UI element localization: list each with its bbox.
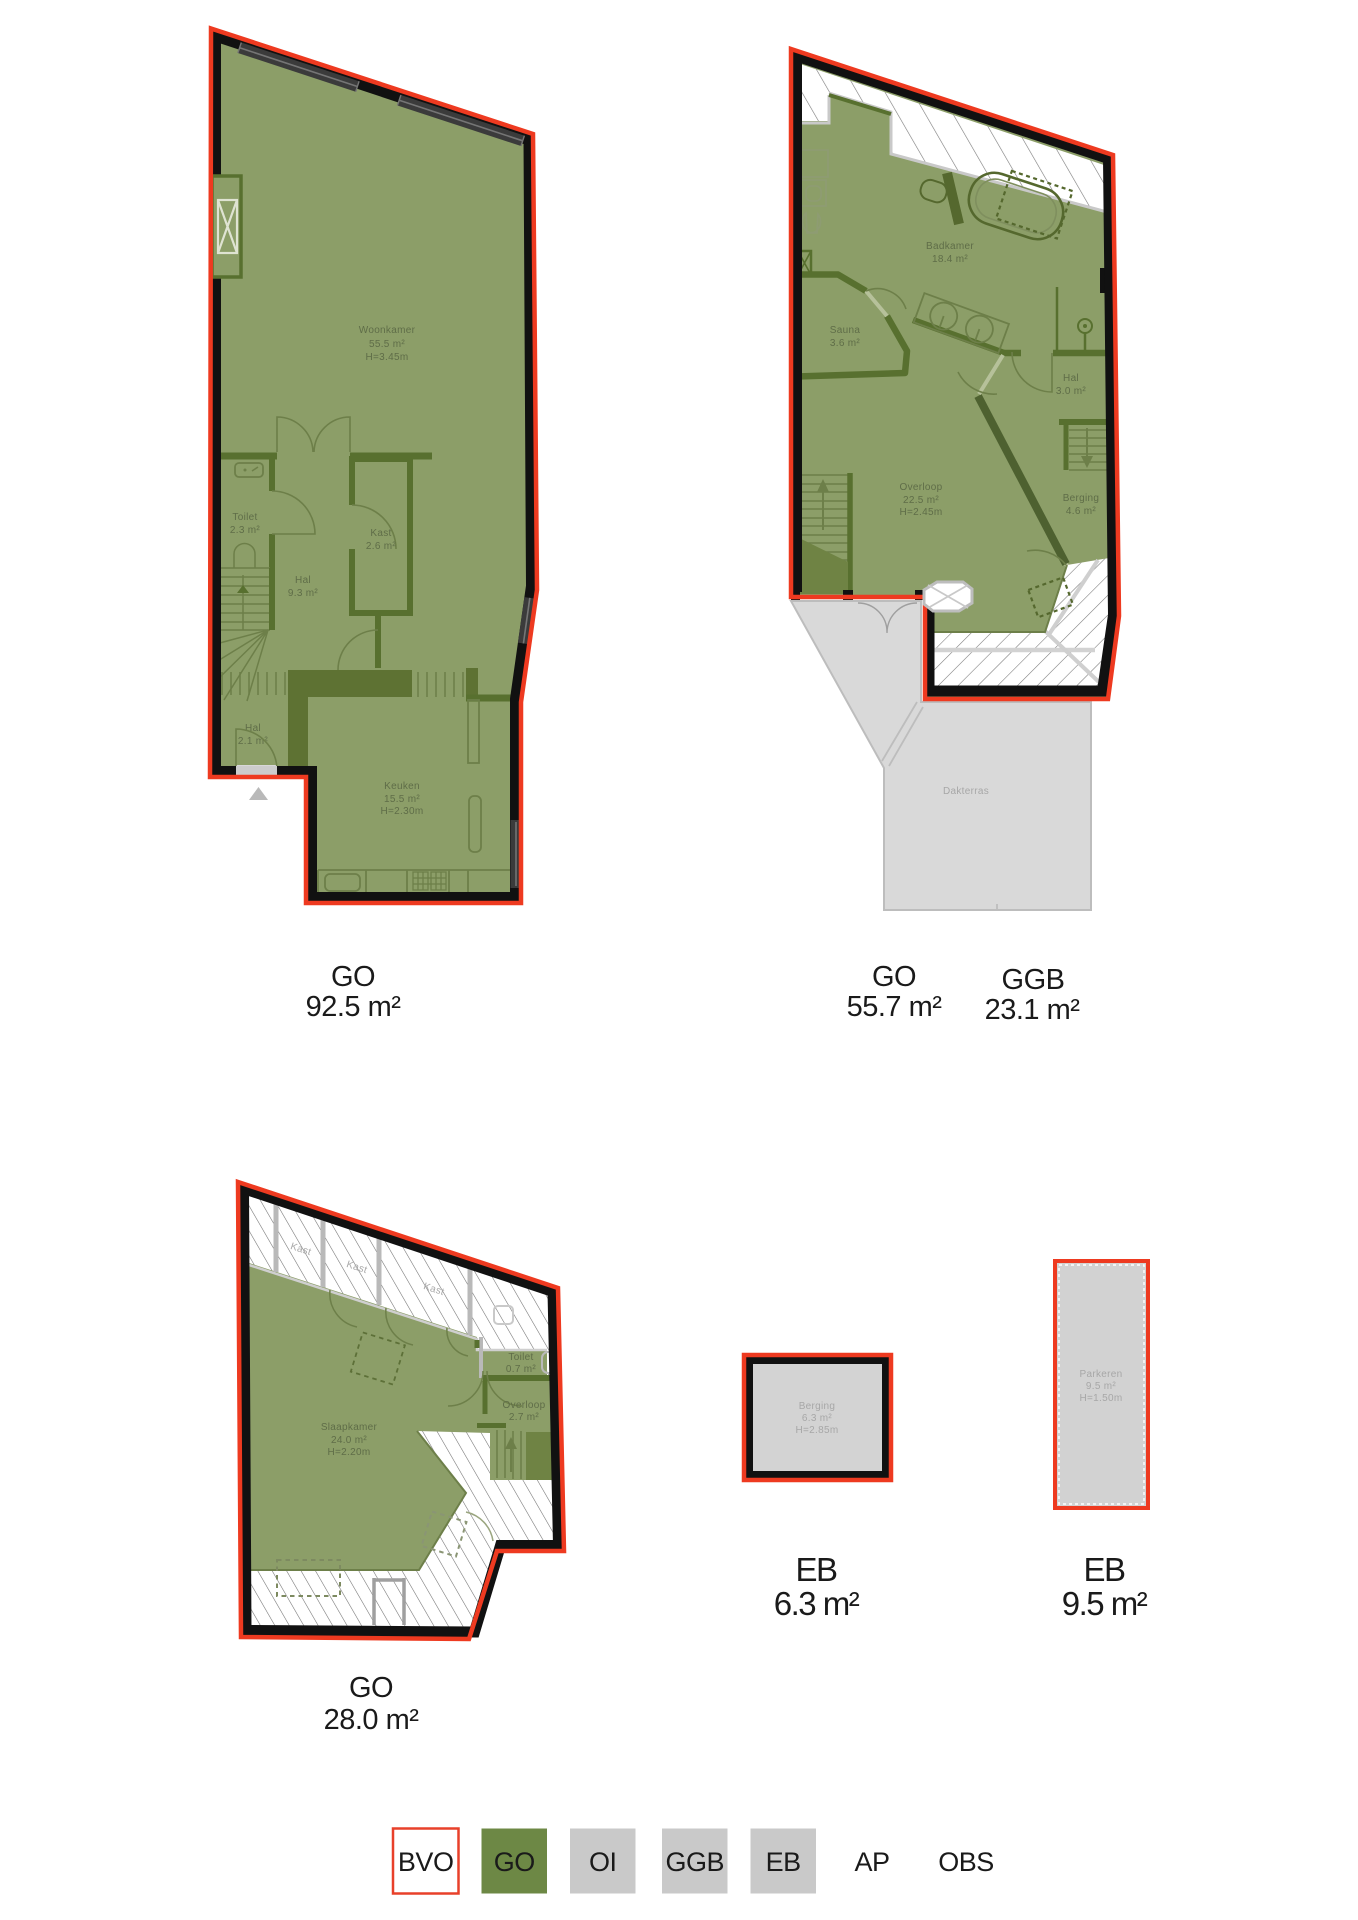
svg-text:GGB: GGB	[665, 1847, 724, 1877]
svg-text:GO: GO	[349, 1672, 393, 1704]
svg-text:BVO: BVO	[398, 1847, 454, 1877]
svg-text:GO: GO	[872, 961, 916, 993]
svg-text:EB: EB	[795, 1551, 837, 1588]
svg-text:2.1 m²: 2.1 m²	[238, 736, 269, 747]
svg-text:3.0 m²: 3.0 m²	[1056, 386, 1087, 397]
svg-text:OI: OI	[589, 1847, 617, 1877]
svg-text:24.0 m²: 24.0 m²	[331, 1435, 367, 1446]
svg-text:H=1.50m: H=1.50m	[1080, 1393, 1123, 1404]
svg-text:GGB: GGB	[1002, 964, 1065, 996]
svg-text:2.7 m²: 2.7 m²	[509, 1412, 540, 1423]
svg-text:Parkeren: Parkeren	[1080, 1369, 1123, 1380]
svg-text:23.1 m²: 23.1 m²	[985, 994, 1081, 1026]
svg-text:9.5 m²: 9.5 m²	[1086, 1381, 1117, 1392]
svg-text:Kast: Kast	[370, 528, 391, 539]
svg-text:GO: GO	[331, 961, 375, 993]
svg-text:6.3 m²: 6.3 m²	[802, 1413, 833, 1424]
svg-text:Toilet: Toilet	[508, 1352, 533, 1363]
svg-text:15.5 m²: 15.5 m²	[384, 794, 420, 805]
svg-text:0.7 m²: 0.7 m²	[506, 1364, 537, 1375]
svg-text:92.5 m²: 92.5 m²	[306, 991, 402, 1023]
svg-text:Dakterras: Dakterras	[943, 786, 989, 797]
svg-text:55.5 m²: 55.5 m²	[369, 339, 405, 350]
svg-text:H=2.85m: H=2.85m	[796, 1425, 839, 1436]
svg-text:6.3 m²: 6.3 m²	[774, 1585, 860, 1622]
svg-text:Berging: Berging	[1063, 493, 1100, 504]
svg-text:9.5 m²: 9.5 m²	[1062, 1585, 1148, 1622]
svg-text:EB: EB	[766, 1847, 801, 1877]
svg-text:4.6 m²: 4.6 m²	[1066, 506, 1097, 517]
svg-text:H=3.45m: H=3.45m	[366, 352, 409, 363]
svg-text:Overloop: Overloop	[900, 482, 943, 493]
svg-text:3.6 m²: 3.6 m²	[830, 338, 861, 349]
svg-text:Overloop: Overloop	[503, 1400, 546, 1411]
svg-text:Slaapkamer: Slaapkamer	[321, 1422, 378, 1433]
svg-text:2.6 m²: 2.6 m²	[366, 541, 397, 552]
svg-text:Keuken: Keuken	[384, 781, 420, 792]
svg-text:AP: AP	[854, 1847, 889, 1877]
svg-text:Hal: Hal	[1063, 373, 1079, 384]
svg-text:OBS: OBS	[938, 1847, 994, 1877]
svg-text:Sauna: Sauna	[830, 325, 861, 336]
svg-text:22.5 m²: 22.5 m²	[903, 495, 939, 506]
svg-text:H=2.30m: H=2.30m	[381, 806, 424, 817]
svg-text:H=2.45m: H=2.45m	[900, 507, 943, 518]
svg-text:Berging: Berging	[799, 1401, 836, 1412]
svg-text:H=2.20m: H=2.20m	[328, 1447, 371, 1458]
svg-text:Toilet: Toilet	[232, 512, 257, 523]
svg-text:Woonkamer: Woonkamer	[359, 325, 416, 336]
svg-text:GO: GO	[494, 1847, 535, 1877]
svg-text:Badkamer: Badkamer	[926, 241, 974, 252]
svg-text:Hal: Hal	[295, 575, 311, 586]
svg-text:9.3 m²: 9.3 m²	[288, 588, 319, 599]
svg-text:28.0 m²: 28.0 m²	[324, 1704, 420, 1736]
svg-text:18.4 m²: 18.4 m²	[932, 254, 968, 265]
svg-text:55.7 m²: 55.7 m²	[847, 991, 943, 1023]
svg-text:EB: EB	[1083, 1551, 1125, 1588]
svg-text:2.3 m²: 2.3 m²	[230, 525, 261, 536]
